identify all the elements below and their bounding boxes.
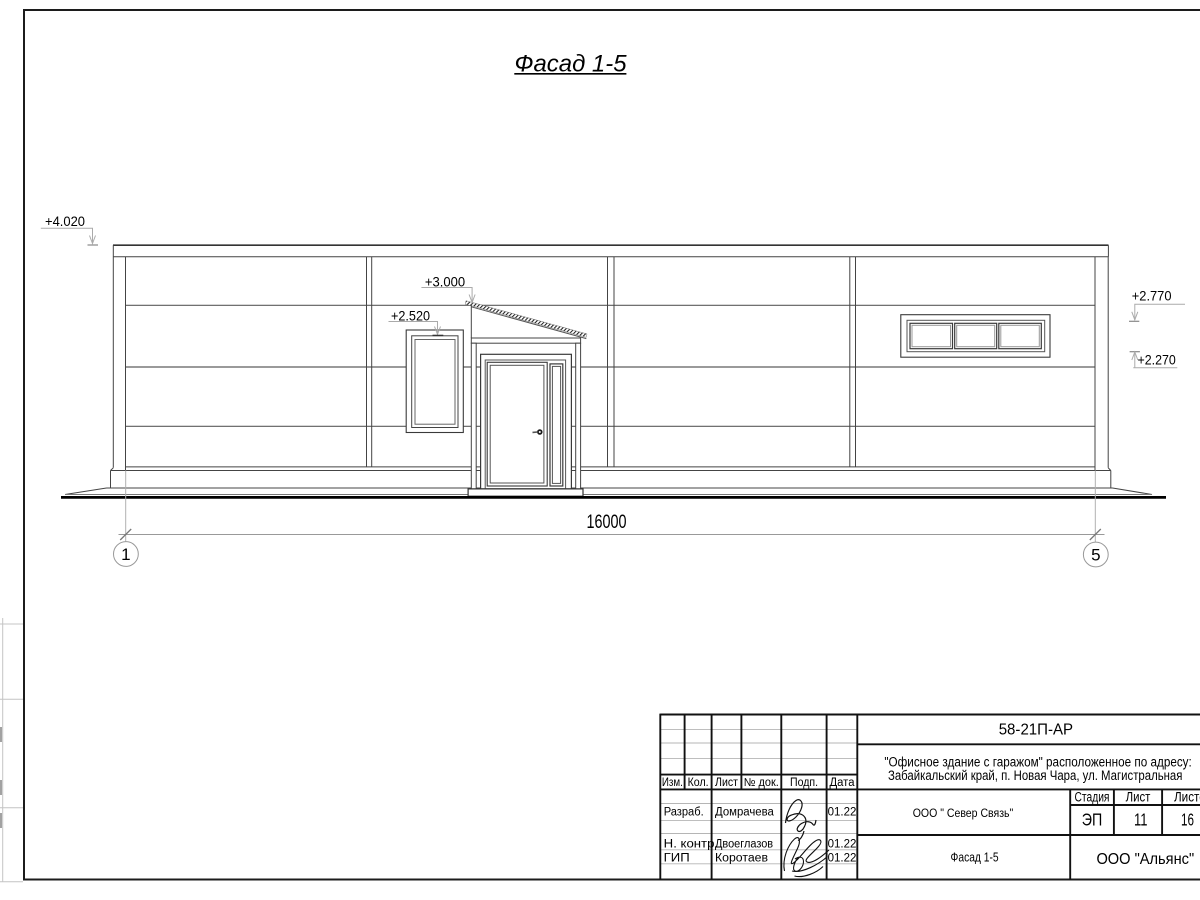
svg-text:Подп.: Подп. xyxy=(790,777,818,789)
svg-text:+2.770: +2.770 xyxy=(1132,287,1172,303)
svg-text:58-21П-АР: 58-21П-АР xyxy=(999,722,1073,739)
svg-text:+2.270: +2.270 xyxy=(1138,351,1176,367)
svg-text:01.22: 01.22 xyxy=(828,853,857,865)
svg-text:Фасад 1-5: Фасад 1-5 xyxy=(951,850,999,865)
svg-text:Домрачева: Домрачева xyxy=(715,807,774,819)
svg-text:Лист: Лист xyxy=(715,777,739,789)
svg-text:+3.000: +3.000 xyxy=(425,273,465,289)
svg-text:Лист: Лист xyxy=(1126,790,1151,805)
svg-text:16000: 16000 xyxy=(587,512,627,533)
svg-text:Забайкальский край, п. Новая Ч: Забайкальский край, п. Новая Чара, ул. М… xyxy=(888,768,1183,783)
svg-text:ЭП: ЭП xyxy=(1082,810,1103,830)
svg-text:Листов: Листов xyxy=(1174,790,1200,805)
svg-text:№ док.: № док. xyxy=(744,777,779,789)
svg-text:16: 16 xyxy=(1181,810,1194,830)
svg-text:Изм.: Изм. xyxy=(662,777,683,789)
svg-text:Разраб.: Разраб. xyxy=(664,807,704,819)
svg-text:11: 11 xyxy=(1134,810,1148,830)
svg-text:01.22: 01.22 xyxy=(828,839,857,851)
svg-text:Кол.: Кол. xyxy=(688,777,709,789)
svg-text:Двоеглазов: Двоеглазов xyxy=(715,839,773,851)
svg-text:ООО "Альянс": ООО "Альянс" xyxy=(1096,851,1194,868)
svg-text:01.22: 01.22 xyxy=(828,807,857,819)
svg-text:Коротаев: Коротаев xyxy=(715,853,768,865)
svg-text:Дата: Дата xyxy=(830,777,856,789)
svg-text:Стадия: Стадия xyxy=(1075,790,1110,805)
svg-text:1: 1 xyxy=(121,545,130,564)
svg-text:ГИП: ГИП xyxy=(664,853,690,865)
svg-text:ООО " Север Связь": ООО " Север Связь" xyxy=(913,806,1014,820)
svg-text:Н. контр.: Н. контр. xyxy=(664,839,718,851)
svg-text:+4.020: +4.020 xyxy=(45,213,85,229)
svg-text:5: 5 xyxy=(1091,546,1100,565)
svg-text:+2.520: +2.520 xyxy=(391,307,430,323)
